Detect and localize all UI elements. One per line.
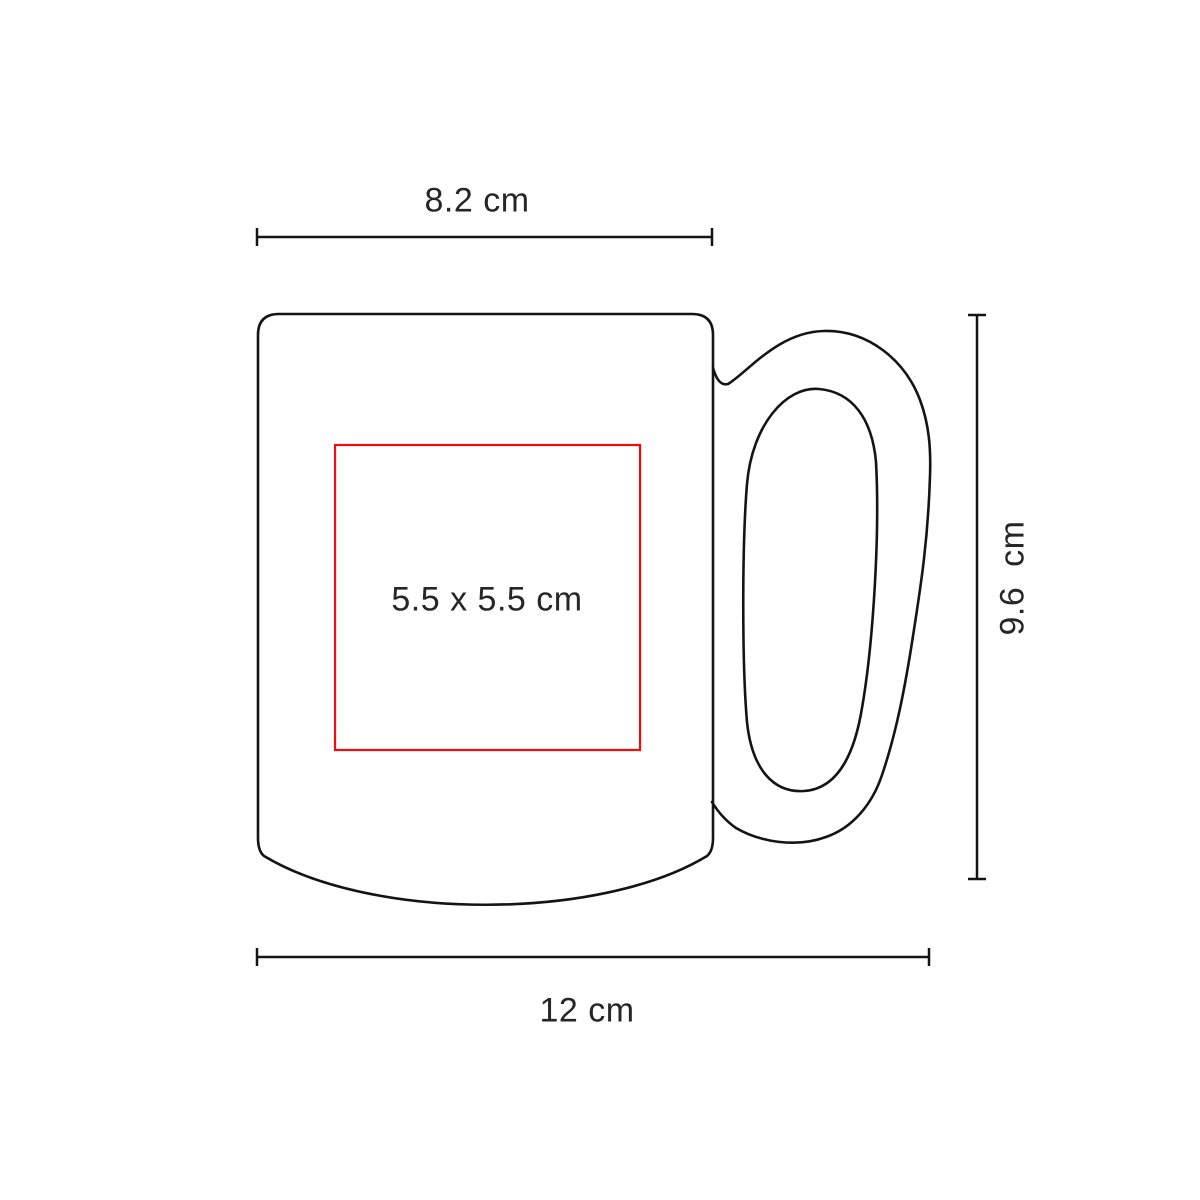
print-area-label: 5.5 x 5.5 cm bbox=[391, 581, 582, 620]
dimension-diagram: 8.2 cm 9.6 cm 12 cm 5.5 x 5.5 cm bbox=[0, 0, 1200, 1200]
dim-right-label: 9.6 cm bbox=[994, 520, 1033, 635]
mug-handle-outer-outline bbox=[712, 331, 930, 843]
dim-top-label: 8.2 cm bbox=[424, 182, 529, 221]
mug-handle-inner-outline bbox=[743, 389, 877, 791]
dim-bottom-label: 12 cm bbox=[539, 992, 634, 1031]
